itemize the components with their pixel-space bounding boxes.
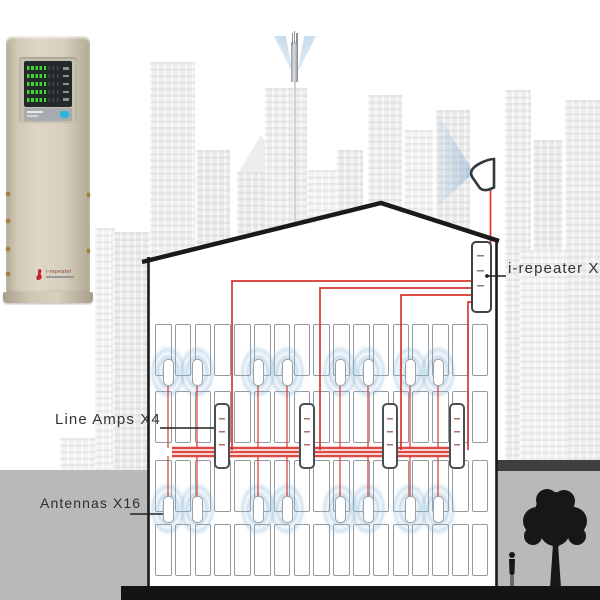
indoor-antenna-unit xyxy=(282,496,293,523)
led-row-label xyxy=(63,67,69,70)
led-row xyxy=(27,66,69,71)
label-i-repeater: i-repeater X1 xyxy=(508,260,600,277)
led-dark-segment xyxy=(48,90,61,94)
indoor-antenna-unit xyxy=(253,359,264,386)
indoor-antenna-unit xyxy=(363,359,374,386)
device-led-display xyxy=(24,61,72,107)
screw-icon xyxy=(87,249,91,253)
logo-text: i-repeater xyxy=(46,270,74,275)
indoor-antenna-unit xyxy=(335,496,346,523)
led-row-label xyxy=(63,83,69,86)
info-text-line xyxy=(27,115,38,117)
logo-subtext xyxy=(46,276,74,278)
power-button xyxy=(60,111,69,118)
led-dark-segment xyxy=(48,98,61,102)
indoor-antenna-unit xyxy=(433,496,444,523)
device-info-strip xyxy=(24,108,72,121)
indoor-antenna-unit xyxy=(282,359,293,386)
led-green-segment xyxy=(27,82,46,86)
info-text-line xyxy=(27,111,43,113)
line-amp-unit xyxy=(299,403,315,469)
indoor-antenna-unit xyxy=(163,359,174,386)
led-green-segment xyxy=(27,90,46,94)
led-dark-segment xyxy=(48,74,61,78)
led-row xyxy=(27,81,69,86)
line-amp-unit xyxy=(214,403,230,469)
device-base xyxy=(3,292,93,303)
led-row xyxy=(27,89,69,94)
indoor-antenna-unit xyxy=(405,496,416,523)
indoor-antenna-unit xyxy=(192,496,203,523)
screw-icon xyxy=(87,193,91,197)
ground-strip xyxy=(121,586,600,600)
window xyxy=(472,460,489,512)
screw-icon xyxy=(6,247,10,251)
line-amp-unit xyxy=(382,403,398,469)
led-dark-segment xyxy=(48,66,61,70)
screw-icon xyxy=(6,219,10,223)
line-amp-unit xyxy=(449,403,465,469)
indoor-antenna-unit xyxy=(405,359,416,386)
indoor-antenna-unit xyxy=(192,359,203,386)
indoor-antenna-unit xyxy=(163,496,174,523)
led-dark-segment xyxy=(48,82,61,86)
led-green-segment xyxy=(27,74,46,78)
indoor-antenna-unit xyxy=(363,496,374,523)
led-row xyxy=(27,74,69,79)
label-line-amps: Line Amps X4 xyxy=(55,411,161,428)
led-green-segment xyxy=(27,98,46,102)
indoor-antenna-unit xyxy=(253,496,264,523)
indoor-antenna-unit xyxy=(433,359,444,386)
screw-icon xyxy=(6,192,10,196)
led-row-label xyxy=(63,91,69,94)
logo-swoosh-icon xyxy=(34,267,44,281)
indoor-antenna-unit xyxy=(335,359,346,386)
label-antennas: Antennas X16 xyxy=(40,495,141,511)
led-row-label xyxy=(63,98,69,101)
scene: i-repeater X1 Line Amps X4 Antennas X16 … xyxy=(0,0,600,600)
screw-icon xyxy=(6,272,10,276)
window xyxy=(472,324,489,376)
window xyxy=(472,391,489,443)
i-repeater-unit xyxy=(471,241,492,313)
led-row-label xyxy=(63,75,69,78)
window xyxy=(472,524,489,576)
led-green-segment xyxy=(27,66,46,70)
led-row xyxy=(27,97,69,102)
brand-logo: i-repeater xyxy=(34,265,86,283)
